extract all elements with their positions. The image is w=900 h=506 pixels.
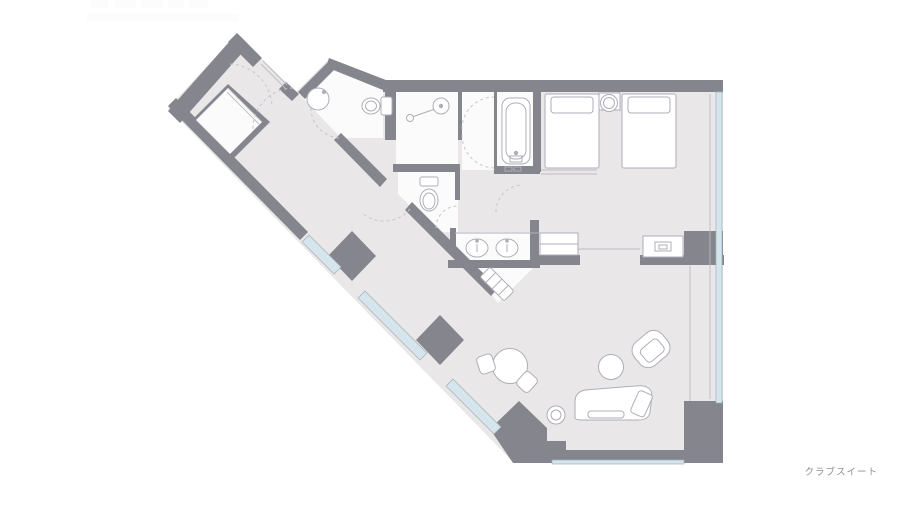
- vanity-sink-icon: [496, 239, 518, 257]
- cabinet: [540, 233, 578, 255]
- bed: [545, 94, 599, 168]
- tv-cabinet: [643, 236, 683, 257]
- window-right: [716, 92, 722, 403]
- wc-fixtures: [420, 177, 438, 211]
- vanity-sink-icon: [466, 239, 488, 257]
- side-table: [547, 406, 565, 424]
- bath-lobby: [462, 92, 497, 170]
- toilet-icon: [362, 97, 392, 115]
- chaise-sofa: [575, 386, 653, 420]
- suite-type-label: クラブスイート: [804, 464, 878, 478]
- window-bottom: [552, 460, 684, 464]
- coffee-table: [599, 355, 624, 380]
- bed: [622, 94, 676, 168]
- bathtub: [502, 98, 530, 171]
- nightstand: [599, 93, 620, 112]
- toilet-icon: [420, 177, 438, 186]
- floor-plan: [0, 0, 900, 506]
- floor-plan-page: クラブスイート: [0, 0, 900, 506]
